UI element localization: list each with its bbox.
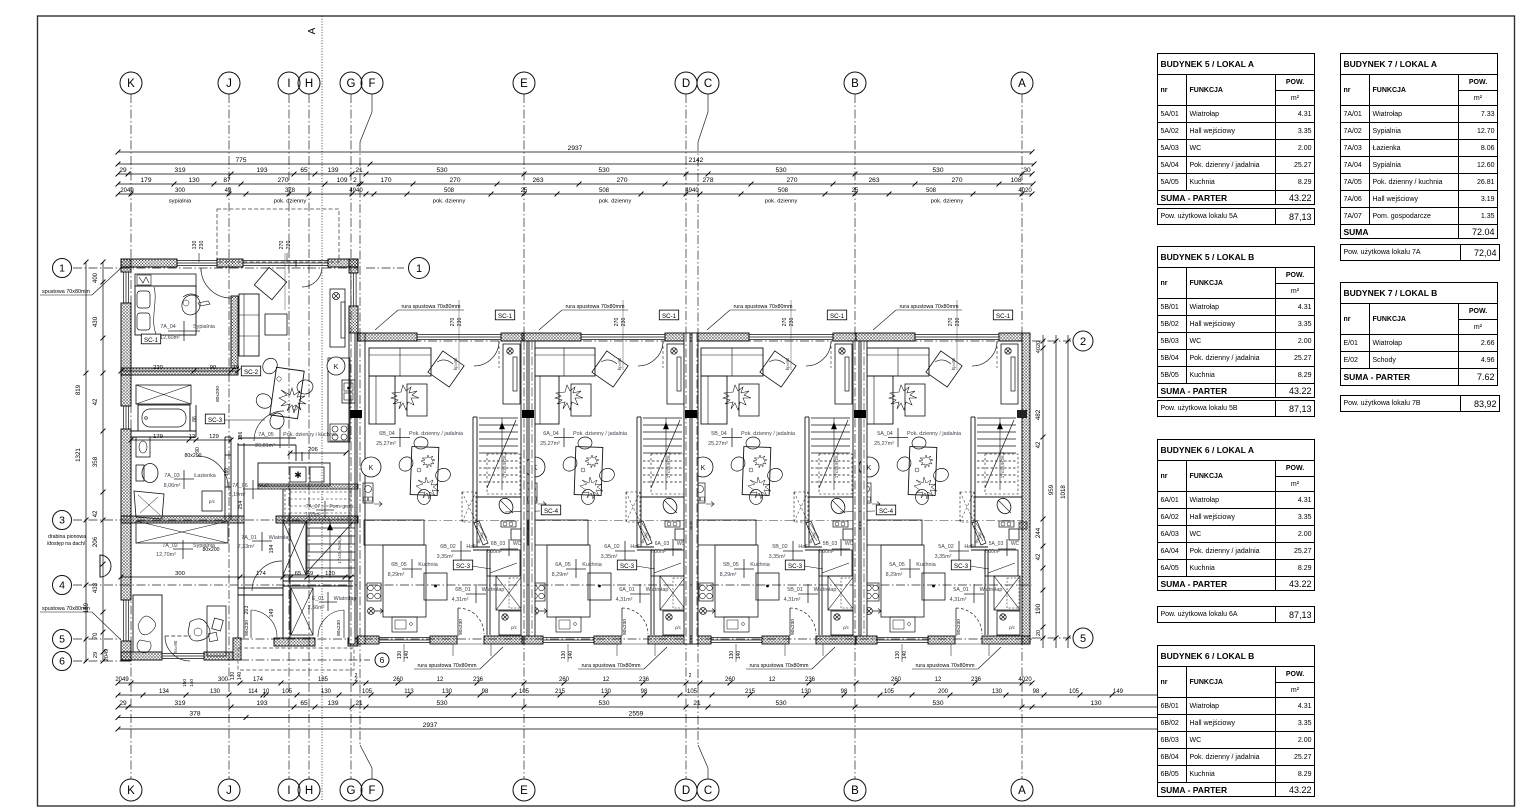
svg-text:2937: 2937 <box>568 145 583 152</box>
svg-text:80x200: 80x200 <box>184 453 201 459</box>
svg-text:12,60m²: 12,60m² <box>160 335 180 341</box>
svg-text:1: 1 <box>59 263 65 275</box>
svg-text:174: 174 <box>253 677 264 683</box>
svg-text:12,70m²: 12,70m² <box>156 552 176 558</box>
svg-text:129: 129 <box>209 434 219 440</box>
svg-text:7A_04: 7A_04 <box>160 324 176 330</box>
svg-text:p/c: p/c <box>1009 625 1016 630</box>
svg-text:270: 270 <box>786 177 797 184</box>
svg-text:7A_07: 7A_07 <box>306 504 321 510</box>
svg-text:358: 358 <box>92 456 99 467</box>
svg-text:17x18,9x26,4: 17x18,9x26,4 <box>666 451 671 478</box>
svg-text:K: K <box>127 785 135 797</box>
svg-text:230: 230 <box>955 318 961 327</box>
svg-text:5B_03: 5B_03 <box>823 541 838 547</box>
svg-text:21: 21 <box>693 700 701 707</box>
svg-text:6B_03: 6B_03 <box>491 541 506 547</box>
svg-text:4,31m²: 4,31m² <box>784 597 801 603</box>
svg-text:5A_02: 5A_02 <box>938 544 954 550</box>
svg-text:17x18,9x26,4: 17x18,9x26,4 <box>337 536 342 564</box>
svg-text:530: 530 <box>932 167 943 174</box>
svg-text:hp=90: hp=90 <box>453 357 458 370</box>
svg-text:12: 12 <box>935 677 942 683</box>
svg-text:Kuchnia: Kuchnia <box>916 562 935 568</box>
svg-text:139: 139 <box>327 167 338 174</box>
svg-text:270: 270 <box>614 318 620 327</box>
svg-text:1018: 1018 <box>1060 485 1067 499</box>
svg-text:2049: 2049 <box>115 677 129 683</box>
svg-text:378: 378 <box>189 711 200 718</box>
svg-text:230: 230 <box>199 241 205 250</box>
svg-text:65: 65 <box>300 700 308 707</box>
svg-text:29: 29 <box>93 652 99 658</box>
svg-text:I: I <box>287 785 290 797</box>
svg-text:775: 775 <box>235 157 246 164</box>
svg-text:508: 508 <box>926 188 937 194</box>
svg-text:300: 300 <box>218 677 229 683</box>
svg-text:Pok. dzienny i kuchnia: Pok. dzienny i kuchnia <box>283 432 337 438</box>
svg-text:86: 86 <box>192 416 198 422</box>
svg-text:E: E <box>520 785 528 797</box>
svg-text:C: C <box>704 785 712 797</box>
svg-text:SC-1: SC-1 <box>662 313 677 320</box>
svg-text:3,35m²: 3,35m² <box>437 554 454 560</box>
svg-text:2559: 2559 <box>629 711 644 718</box>
svg-text:Hall: Hall <box>466 544 475 550</box>
svg-text:206: 206 <box>92 536 99 547</box>
svg-text:5B_05: 5B_05 <box>723 562 739 568</box>
svg-text:433: 433 <box>92 582 99 593</box>
svg-text:19: 19 <box>233 365 239 371</box>
svg-text:260: 260 <box>393 677 404 683</box>
svg-text:170: 170 <box>380 177 391 184</box>
svg-text:80x200: 80x200 <box>202 547 219 553</box>
svg-text:263: 263 <box>868 177 879 184</box>
svg-text:rura spustowa 70x80mm: rura spustowa 70x80mm <box>417 663 477 669</box>
svg-text:Wiatrołap: Wiatrołap <box>482 587 505 593</box>
svg-text:rura spustowa 70x80mm: rura spustowa 70x80mm <box>581 663 641 669</box>
svg-text:149: 149 <box>1113 689 1124 695</box>
svg-text:K: K <box>701 465 706 472</box>
svg-text:rura spustowa 70x80mm: rura spustowa 70x80mm <box>733 304 793 310</box>
svg-text:8,29m²: 8,29m² <box>720 572 737 578</box>
svg-text:12: 12 <box>603 677 610 683</box>
svg-text:rura spustowa 70x80mm: rura spustowa 70x80mm <box>749 663 809 669</box>
svg-text:42: 42 <box>93 510 99 517</box>
svg-text:4,31m²: 4,31m² <box>616 597 633 603</box>
svg-text:236: 236 <box>971 677 982 683</box>
svg-text:C: C <box>704 78 712 90</box>
svg-text:90x230: 90x230 <box>622 619 628 635</box>
svg-text:90: 90 <box>210 365 216 371</box>
svg-text:130: 130 <box>442 689 453 695</box>
svg-text:SC-1: SC-1 <box>144 337 159 344</box>
svg-text:hs=90: hs=90 <box>173 640 178 653</box>
svg-text:H: H <box>305 785 313 797</box>
svg-text:5A_01: 5A_01 <box>953 587 969 593</box>
svg-text:206: 206 <box>308 447 318 453</box>
svg-text:6A_02: 6A_02 <box>604 544 620 550</box>
svg-text:7A_02: 7A_02 <box>162 543 178 549</box>
svg-text:Łazienka: Łazienka <box>194 473 216 479</box>
svg-text:130: 130 <box>188 177 199 184</box>
svg-text:193: 193 <box>256 700 267 707</box>
svg-text:12: 12 <box>769 677 776 683</box>
svg-text:/dostęp na dach/: /dostęp na dach/ <box>47 541 86 547</box>
svg-text:130: 130 <box>210 689 221 695</box>
svg-text:113: 113 <box>404 689 414 695</box>
svg-text:WC: WC <box>513 541 522 547</box>
svg-text:Wiatrołap: Wiatrołap <box>646 587 669 593</box>
svg-text:139: 139 <box>327 700 338 707</box>
svg-text:130: 130 <box>397 651 403 660</box>
svg-text:p/c: p/c <box>209 499 216 504</box>
svg-text:5B_04: 5B_04 <box>711 431 727 437</box>
svg-text:17x18,9x26,4: 17x18,9x26,4 <box>502 451 507 478</box>
svg-text:I: I <box>287 78 290 90</box>
svg-text:114: 114 <box>248 689 258 695</box>
svg-text:260: 260 <box>725 677 736 683</box>
svg-text:A: A <box>1018 78 1026 90</box>
svg-text:87: 87 <box>223 177 231 184</box>
svg-text:236: 236 <box>805 677 816 683</box>
svg-text:8,06m²: 8,06m² <box>164 483 181 489</box>
svg-text:65: 65 <box>300 167 308 174</box>
svg-text:6: 6 <box>380 655 385 665</box>
svg-text:4020: 4020 <box>1036 341 1042 353</box>
svg-text:5: 5 <box>1080 633 1086 645</box>
svg-text:244: 244 <box>1035 527 1042 538</box>
svg-text:230: 230 <box>789 318 795 327</box>
svg-text:25,27m²: 25,27m² <box>376 441 396 447</box>
svg-text:959: 959 <box>1048 484 1055 495</box>
svg-text:Wiatrołap: Wiatrołap <box>980 587 1003 593</box>
svg-text:130: 130 <box>561 651 567 660</box>
svg-text:7A_01: 7A_01 <box>241 535 257 541</box>
svg-text:90x230: 90x230 <box>458 619 464 635</box>
svg-text:5A_04: 5A_04 <box>877 431 893 437</box>
svg-text:220: 220 <box>153 365 163 371</box>
svg-text:49: 49 <box>225 188 232 194</box>
svg-text:270: 270 <box>279 241 285 250</box>
svg-text:190: 190 <box>1035 603 1042 614</box>
svg-text:130: 130 <box>192 241 198 250</box>
svg-text:3: 3 <box>59 515 65 527</box>
svg-text:134: 134 <box>159 689 170 695</box>
svg-text:278: 278 <box>702 177 713 184</box>
svg-text:270: 270 <box>782 318 788 327</box>
svg-text:105: 105 <box>687 689 698 695</box>
svg-text:140: 140 <box>902 651 908 660</box>
svg-text:Sypialnia: Sypialnia <box>193 324 215 330</box>
svg-text:hp=90: hp=90 <box>785 357 790 370</box>
svg-text:12: 12 <box>437 677 444 683</box>
svg-text:200: 200 <box>938 689 949 695</box>
svg-text:270: 270 <box>450 318 456 327</box>
svg-text:42: 42 <box>1036 441 1042 448</box>
svg-text:42: 42 <box>1036 553 1042 560</box>
svg-text:508: 508 <box>599 188 610 194</box>
svg-text:65: 65 <box>295 571 301 577</box>
svg-text:2: 2 <box>689 673 692 679</box>
svg-text:530: 530 <box>598 167 609 174</box>
svg-text:B: B <box>851 785 859 797</box>
svg-text:A: A <box>307 27 318 34</box>
svg-text:5B_02: 5B_02 <box>772 544 788 550</box>
svg-text:6B_04: 6B_04 <box>379 431 395 437</box>
svg-text:260: 260 <box>559 677 570 683</box>
svg-text:2: 2 <box>353 177 357 184</box>
svg-text:D: D <box>682 785 690 797</box>
svg-text:G: G <box>347 785 356 797</box>
svg-text:H: H <box>305 78 313 90</box>
svg-text:3,35m²: 3,35m² <box>935 554 952 560</box>
svg-text:SC-3: SC-3 <box>456 563 471 570</box>
svg-text:130: 130 <box>601 689 612 695</box>
svg-text:SC-3: SC-3 <box>788 563 803 570</box>
svg-text:SC-1: SC-1 <box>498 313 513 320</box>
svg-text:2049: 2049 <box>120 188 134 194</box>
svg-text:10: 10 <box>263 689 270 695</box>
svg-text:1,35m²: 1,35m² <box>305 512 321 518</box>
svg-text:spustowa 70x80mm: spustowa 70x80mm <box>42 606 90 612</box>
svg-text:SC-4: SC-4 <box>544 508 559 515</box>
svg-text:2: 2 <box>1080 336 1086 348</box>
svg-text:pok. dzienny: pok. dzienny <box>765 199 798 205</box>
svg-text:400: 400 <box>93 272 99 283</box>
svg-text:A: A <box>1018 785 1026 797</box>
svg-text:SC-1: SC-1 <box>996 313 1011 320</box>
svg-text:3,35m²: 3,35m² <box>769 554 786 560</box>
svg-text:pok. dzienny: pok. dzienny <box>433 199 466 205</box>
svg-text:130: 130 <box>801 689 812 695</box>
svg-text:Wiatrołap: Wiatrołap <box>334 596 357 602</box>
svg-text:8,29m²: 8,29m² <box>886 572 903 578</box>
svg-text:236: 236 <box>473 677 484 683</box>
svg-text:J: J <box>226 785 232 797</box>
svg-text:482: 482 <box>1035 409 1042 420</box>
svg-text:215: 215 <box>555 689 566 695</box>
svg-text:25,27m²: 25,27m² <box>540 441 560 447</box>
svg-text:98: 98 <box>641 689 648 695</box>
svg-text:530: 530 <box>932 700 943 707</box>
svg-text:E_01: E_01 <box>312 596 325 602</box>
svg-text:98: 98 <box>482 689 489 695</box>
svg-text:203: 203 <box>244 606 250 615</box>
svg-text:hp=90: hp=90 <box>617 357 622 370</box>
svg-text:2142: 2142 <box>689 157 704 164</box>
svg-text:530: 530 <box>775 167 786 174</box>
svg-text:F: F <box>368 785 375 797</box>
svg-text:17x18,9x26,4: 17x18,9x26,4 <box>1000 451 1005 478</box>
svg-text:105: 105 <box>519 689 530 695</box>
svg-text:819: 819 <box>75 384 82 395</box>
svg-text:90x230: 90x230 <box>790 619 796 635</box>
svg-text:508: 508 <box>444 188 455 194</box>
svg-text:6A_03: 6A_03 <box>655 541 670 547</box>
svg-text:130: 130 <box>1090 700 1101 707</box>
svg-text:p/c: p/c <box>675 625 682 630</box>
svg-text:120: 120 <box>325 571 335 577</box>
svg-text:30: 30 <box>1023 167 1031 174</box>
svg-text:Hall: Hall <box>259 483 268 489</box>
svg-text:3,19m²: 3,19m² <box>229 492 246 498</box>
svg-text:105: 105 <box>282 689 293 695</box>
svg-text:SC-3: SC-3 <box>208 417 223 424</box>
svg-text:3,35m²: 3,35m² <box>601 554 618 560</box>
svg-text:70: 70 <box>93 632 99 639</box>
svg-text:140: 140 <box>237 672 243 681</box>
svg-text:p/c: p/c <box>511 625 518 630</box>
svg-text:K: K <box>334 364 339 371</box>
svg-text:Hall: Hall <box>798 544 807 550</box>
svg-text:spustowa 70x80mm: spustowa 70x80mm <box>42 289 90 295</box>
svg-text:7A_05: 7A_05 <box>258 432 274 438</box>
svg-text:270: 270 <box>616 177 627 184</box>
svg-text:G: G <box>347 78 356 90</box>
svg-text:254: 254 <box>238 501 244 510</box>
svg-text:6A_01: 6A_01 <box>619 587 635 593</box>
svg-text:90x230: 90x230 <box>244 620 250 636</box>
svg-text:Kuchnia: Kuchnia <box>582 562 601 568</box>
svg-text:108: 108 <box>1010 177 1021 184</box>
svg-text:pok. dzienny: pok. dzienny <box>931 199 964 205</box>
svg-text:4: 4 <box>59 580 65 592</box>
svg-text:530: 530 <box>598 700 609 707</box>
svg-text:29: 29 <box>119 167 127 174</box>
svg-text:SC-2: SC-2 <box>244 369 259 376</box>
svg-text:E: E <box>520 78 528 90</box>
svg-text:5A_05: 5A_05 <box>889 562 905 568</box>
svg-text:5A_03: 5A_03 <box>989 541 1004 547</box>
svg-text:SC-3: SC-3 <box>620 563 635 570</box>
svg-text:130: 130 <box>230 672 236 681</box>
svg-text:130: 130 <box>895 651 901 660</box>
svg-text:8,29m²: 8,29m² <box>388 572 405 578</box>
svg-text:2,00m²: 2,00m² <box>818 549 834 555</box>
svg-text:105: 105 <box>362 689 373 695</box>
svg-text:2,00m²: 2,00m² <box>984 549 1000 555</box>
svg-text:25: 25 <box>852 188 859 194</box>
svg-text:drabina pionowa: drabina pionowa <box>48 534 86 540</box>
svg-text:300: 300 <box>175 571 185 577</box>
svg-text:230: 230 <box>457 318 463 327</box>
svg-text:90x230: 90x230 <box>956 619 962 635</box>
svg-text:98: 98 <box>1033 689 1040 695</box>
svg-text:4940: 4940 <box>349 188 363 194</box>
svg-text:4,31m²: 4,31m² <box>452 597 469 603</box>
svg-text:185: 185 <box>318 677 329 683</box>
svg-text:236: 236 <box>639 677 650 683</box>
svg-text:26,81m²: 26,81m² <box>255 443 275 449</box>
svg-text:25,27m²: 25,27m² <box>874 441 894 447</box>
svg-text:rura spustowa 70x80mm: rura spustowa 70x80mm <box>565 304 625 310</box>
svg-text:319: 319 <box>174 700 185 707</box>
svg-text:6: 6 <box>59 656 65 668</box>
svg-text:263: 263 <box>532 177 543 184</box>
svg-text:21: 21 <box>355 167 363 174</box>
svg-text:rura spustowa 70x80mm: rura spustowa 70x80mm <box>899 304 959 310</box>
svg-text:270: 270 <box>277 177 288 184</box>
svg-text:149: 149 <box>269 609 275 618</box>
svg-text:J: J <box>226 78 232 90</box>
svg-text:4940: 4940 <box>685 188 699 194</box>
svg-text:530: 530 <box>436 700 447 707</box>
svg-text:Hall: Hall <box>964 544 973 550</box>
svg-text:Wiatrołap: Wiatrołap <box>269 535 292 541</box>
svg-text:SC-4: SC-4 <box>879 508 894 515</box>
svg-text:5: 5 <box>59 634 65 646</box>
svg-text:4020: 4020 <box>1018 188 1032 194</box>
svg-text:WC: WC <box>845 541 854 547</box>
svg-text:215: 215 <box>745 689 756 695</box>
svg-text:sypialnia: sypialnia <box>169 199 192 205</box>
svg-text:Pok. dzienny / jadalnia: Pok. dzienny / jadalnia <box>907 431 961 437</box>
svg-text:130: 130 <box>729 651 735 660</box>
svg-text:160: 160 <box>224 468 230 477</box>
svg-text:6B_05: 6B_05 <box>391 562 407 568</box>
svg-text:p/c: p/c <box>843 625 850 630</box>
svg-text:Hall: Hall <box>630 544 639 550</box>
svg-text:6A_05: 6A_05 <box>555 562 571 568</box>
svg-text:105: 105 <box>1069 689 1080 695</box>
svg-text:430: 430 <box>92 316 99 327</box>
svg-text:7,33m²: 7,33m² <box>238 544 255 550</box>
svg-text:319: 319 <box>174 167 185 174</box>
svg-text:2,66m²: 2,66m² <box>308 605 325 611</box>
svg-text:SC-3: SC-3 <box>954 563 969 570</box>
svg-text:130: 130 <box>992 689 1003 695</box>
svg-text:SC-1: SC-1 <box>830 313 845 320</box>
svg-text:270: 270 <box>449 177 460 184</box>
svg-text:49: 49 <box>307 571 313 577</box>
svg-text:300: 300 <box>175 188 186 194</box>
svg-text:WC: WC <box>1011 541 1020 547</box>
svg-text:6B_01: 6B_01 <box>455 587 471 593</box>
svg-text:105: 105 <box>884 689 895 695</box>
svg-text:140: 140 <box>404 651 410 660</box>
svg-text:Pok. dzienny / jadalnia: Pok. dzienny / jadalnia <box>741 431 795 437</box>
svg-text:186: 186 <box>238 432 244 441</box>
svg-text:✱: ✱ <box>294 470 302 480</box>
svg-text:rura spustowa 70x80mm: rura spustowa 70x80mm <box>915 663 975 669</box>
svg-text:5B_01: 5B_01 <box>787 587 803 593</box>
svg-text:6A_04: 6A_04 <box>543 431 559 437</box>
svg-text:2049: 2049 <box>104 649 110 661</box>
svg-text:260: 260 <box>891 677 902 683</box>
svg-text:140: 140 <box>568 651 574 660</box>
svg-text:7A_03: 7A_03 <box>164 473 180 479</box>
svg-text:270: 270 <box>951 177 962 184</box>
svg-text:109: 109 <box>336 177 347 184</box>
svg-text:8,29m²: 8,29m² <box>552 572 569 578</box>
svg-text:193: 193 <box>256 167 267 174</box>
svg-text:B: B <box>851 78 859 90</box>
svg-text:K: K <box>369 465 374 472</box>
svg-text:6B_02: 6B_02 <box>440 544 456 550</box>
svg-text:rura spustowa 70x80mm: rura spustowa 70x80mm <box>401 304 461 310</box>
svg-text:194: 194 <box>269 545 275 554</box>
svg-text:Pok. dzienny / jadalnia: Pok. dzienny / jadalnia <box>573 431 627 437</box>
svg-text:4,31m²: 4,31m² <box>950 597 967 603</box>
svg-text:Kuchnia: Kuchnia <box>418 562 437 568</box>
svg-text:4020: 4020 <box>1018 677 1032 683</box>
svg-text:530: 530 <box>775 700 786 707</box>
svg-text:98: 98 <box>841 689 848 695</box>
svg-text:42: 42 <box>93 398 99 405</box>
svg-text:Pom. gosp.: Pom. gosp. <box>329 504 354 510</box>
svg-text:K: K <box>127 78 135 90</box>
